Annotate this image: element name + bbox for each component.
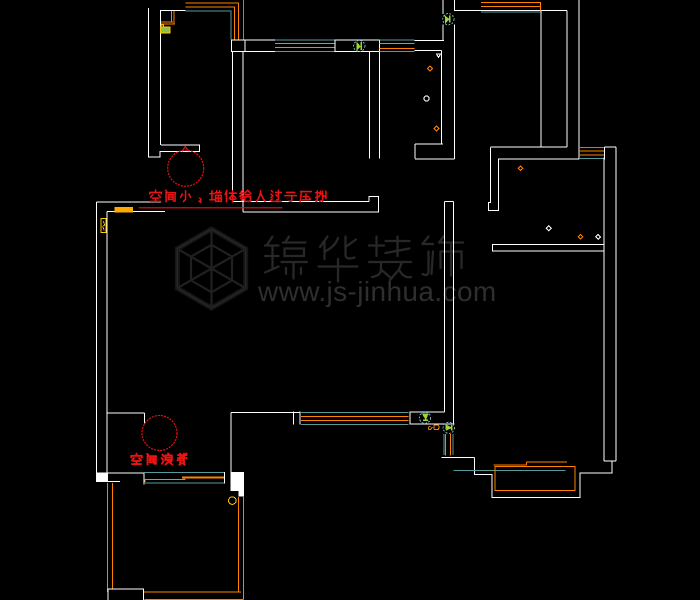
- svg-text:www.js-jinhua.com: www.js-jinhua.com: [257, 276, 497, 307]
